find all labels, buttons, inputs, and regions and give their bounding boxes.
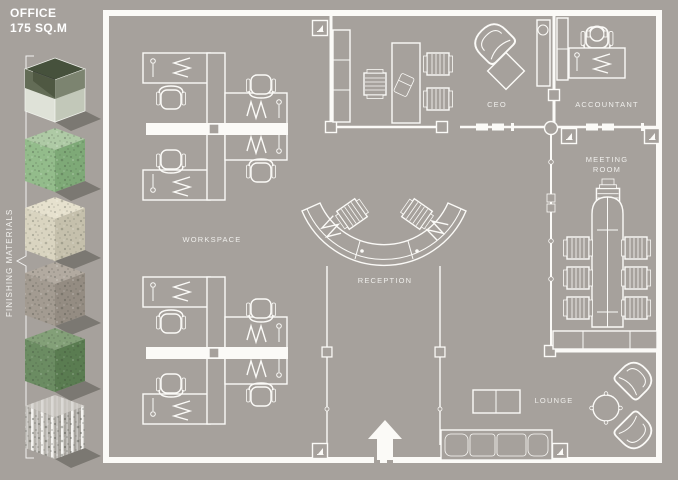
ceo-chair bbox=[364, 70, 386, 99]
meeting-chair bbox=[622, 297, 651, 319]
title-line2: 175 SQ.M bbox=[10, 21, 67, 35]
workstation-cluster-top bbox=[143, 53, 288, 200]
room-label-reception: RECEPTION bbox=[335, 276, 435, 286]
round-table bbox=[593, 395, 619, 421]
credenza bbox=[553, 331, 657, 349]
door-swing-icon bbox=[553, 444, 568, 459]
meeting-room bbox=[553, 179, 657, 349]
meeting-chair bbox=[564, 237, 593, 259]
meeting-chair bbox=[564, 297, 593, 319]
door-swing-icon bbox=[313, 444, 328, 459]
entrance bbox=[368, 420, 402, 463]
lounge-area bbox=[441, 357, 657, 460]
sofa bbox=[441, 430, 552, 460]
reception-chair bbox=[399, 197, 435, 232]
title-line1: OFFICE bbox=[10, 6, 56, 20]
reception-area bbox=[302, 197, 466, 266]
guest-chair bbox=[424, 53, 453, 75]
meeting-chair bbox=[622, 267, 651, 289]
finishing-materials-label: FINISHING MATERIALS bbox=[5, 200, 14, 325]
shelf-cabinet bbox=[333, 30, 350, 122]
lounge-armchair bbox=[613, 410, 657, 454]
workstation-cluster-bottom bbox=[143, 277, 288, 424]
room-label-lounge: LOUNGE bbox=[514, 396, 594, 406]
lounge-armchair bbox=[613, 357, 657, 401]
column-junction bbox=[545, 122, 558, 135]
guest-chair bbox=[424, 88, 453, 110]
reception-chair bbox=[334, 197, 370, 232]
door-swing-icon bbox=[562, 129, 577, 144]
room-label-meeting-room: MEETING ROOM bbox=[572, 155, 642, 175]
entrance-arrow-icon bbox=[368, 420, 402, 460]
door-swing-icon bbox=[313, 21, 328, 36]
reception-desk bbox=[302, 203, 466, 265]
room-label-ceo: CEO bbox=[467, 100, 527, 110]
room-label-workspace: WORKSPACE bbox=[162, 235, 262, 245]
accountant-office bbox=[557, 18, 625, 80]
meeting-chair bbox=[564, 267, 593, 289]
page-title: OFFICE175 SQ.M bbox=[10, 6, 67, 36]
presentation-board: OFFICE175 SQ.M WALLS FINISHING MATERIALS… bbox=[0, 0, 678, 480]
meeting-chair bbox=[622, 237, 651, 259]
door-swing-icon bbox=[645, 129, 660, 144]
room-label-accountant: ACCOUNTANT bbox=[557, 100, 657, 110]
